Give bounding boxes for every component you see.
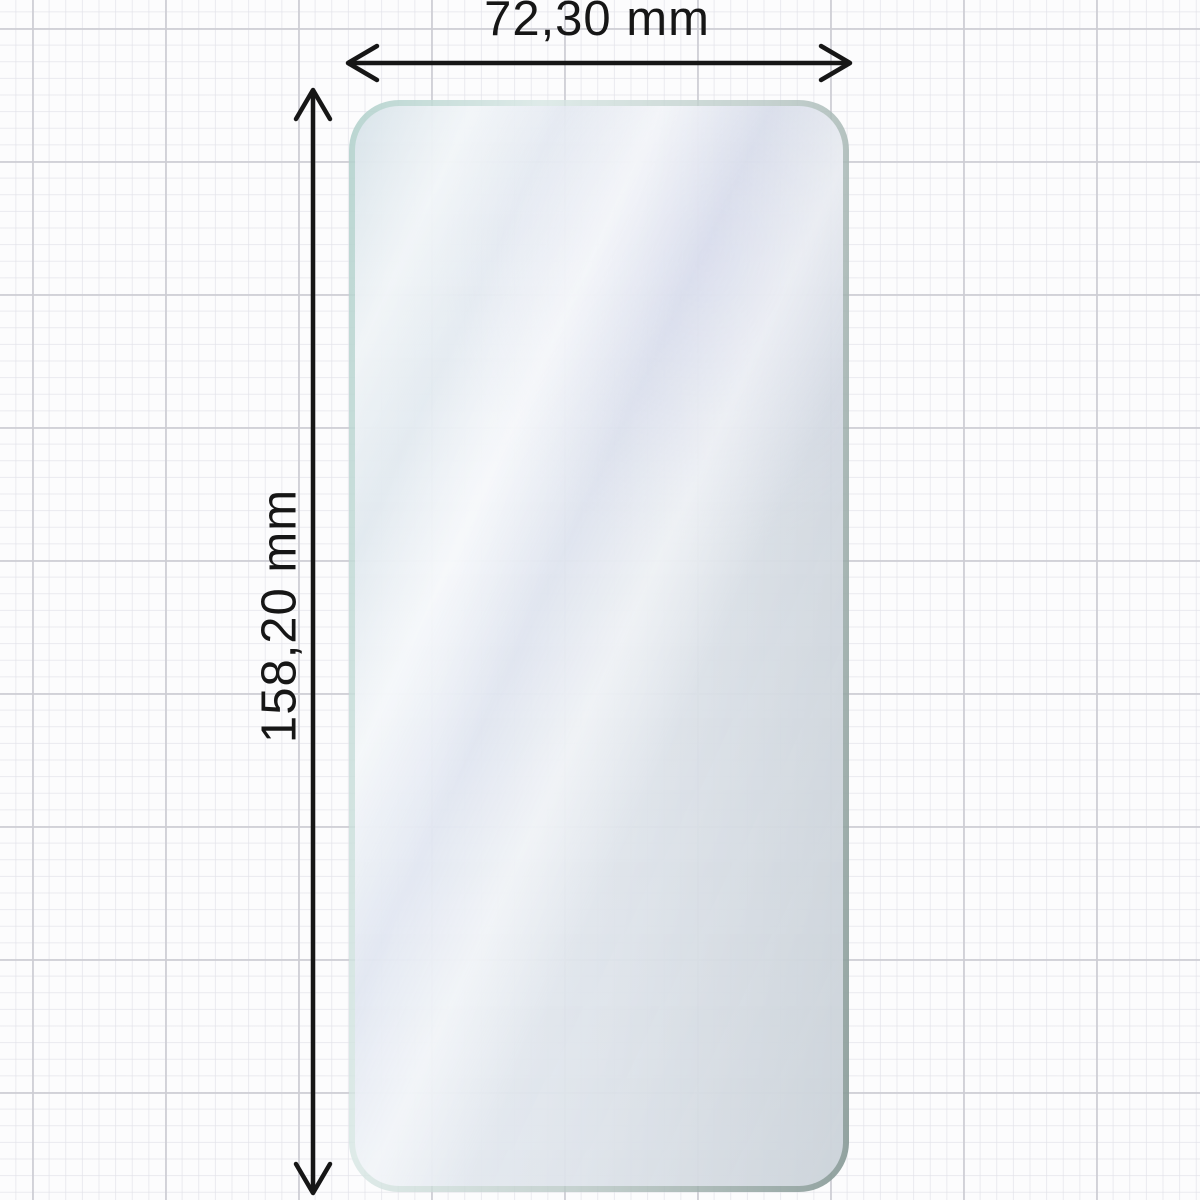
screen-protector-surface <box>355 106 843 1186</box>
height-dimension-label: 158,20 mm <box>256 489 305 743</box>
screen-protector-film <box>349 100 849 1192</box>
diagram-canvas: 72,30 mm 158,20 mm <box>0 0 1200 1200</box>
width-dimension-label: 72,30 mm <box>484 0 710 44</box>
